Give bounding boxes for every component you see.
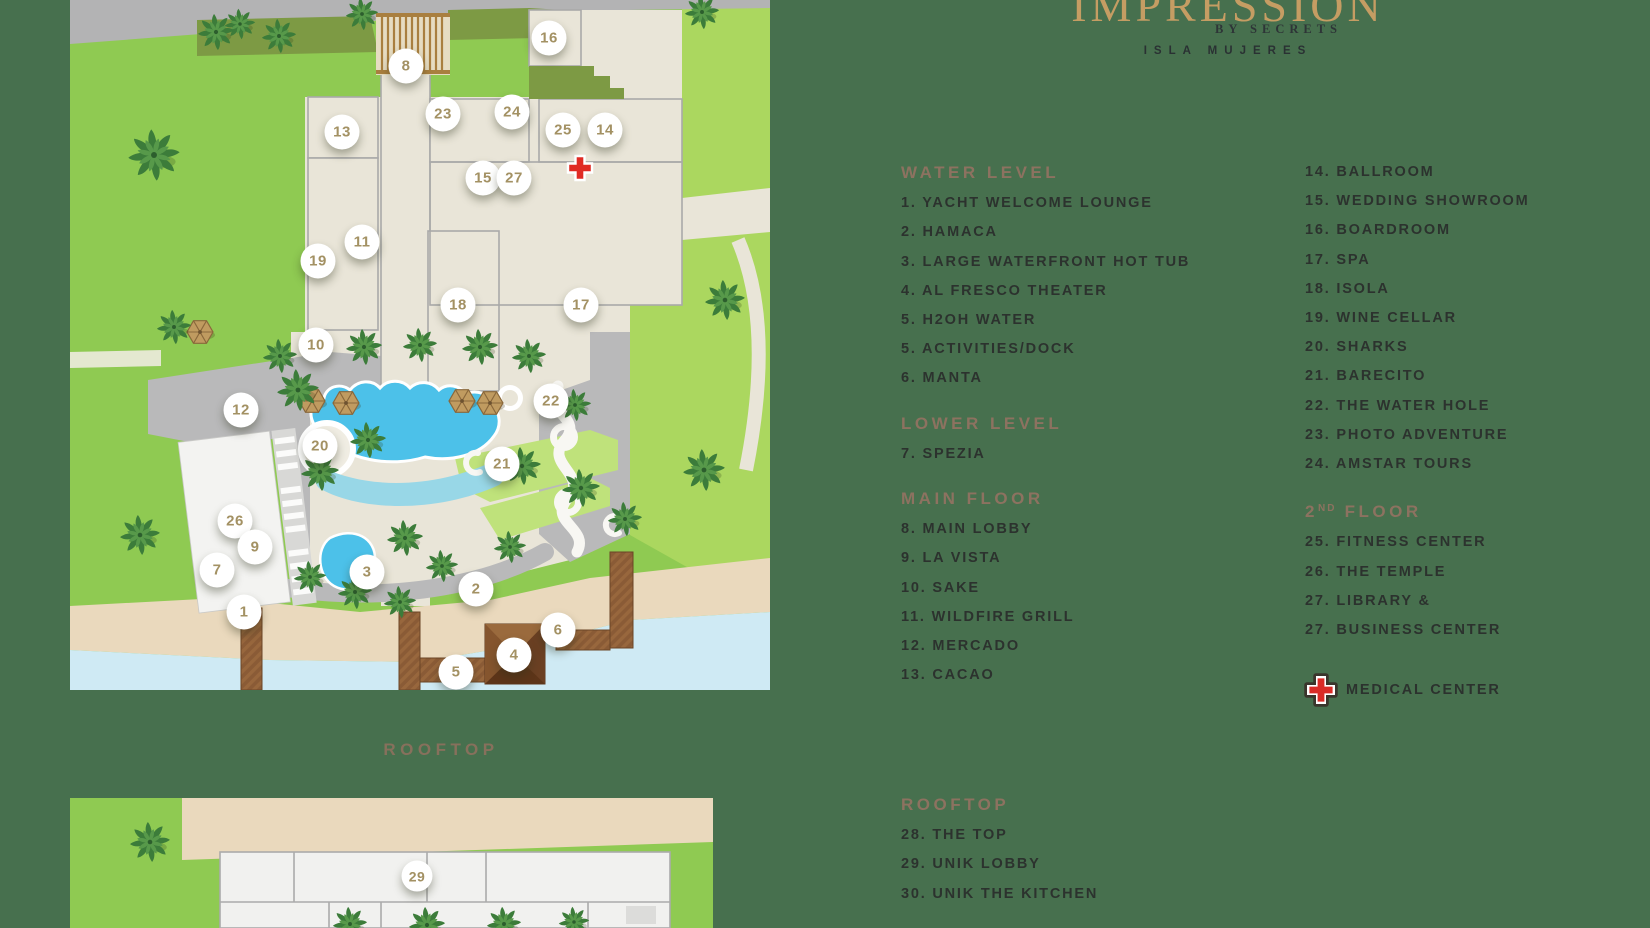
legend-section-title: MAIN FLOOR [901,484,1261,513]
map-marker-29: 29 [402,861,433,892]
map-main-illustration [70,0,770,690]
map-marker-27: 27 [497,161,532,196]
legend-section: LOWER LEVEL7. SPEZIA [901,409,1261,469]
legend-item: 9. LA VISTA [901,544,1261,573]
map-marker-24: 24 [495,95,530,130]
legend-item: 23. PHOTO ADVENTURE [1305,421,1635,450]
map-rooftop-illustration [70,798,713,928]
legend-rooftop: ROOFTOP28. THE TOP29. UNIK LOBBY30. UNIK… [901,790,1261,909]
legend-item: 24. AMSTAR TOURS [1305,450,1635,479]
map-marker-12: 12 [224,393,259,428]
map-marker-22: 22 [534,384,569,419]
map-marker-18: 18 [441,288,476,323]
legend-item: 5. ACTIVITIES/DOCK [901,335,1261,364]
legend-item: 4. AL FRESCO THEATER [901,277,1261,306]
brand-location: ISLA MUJERES [1078,45,1378,57]
map-marker-11: 11 [345,225,380,260]
map-marker-25: 25 [546,113,581,148]
legend-item: 30. UNIK THE KITCHEN [901,880,1261,909]
map-marker-8: 8 [389,49,424,84]
legend-item: 27. LIBRARY & [1305,587,1635,616]
map-marker-20: 20 [303,429,338,464]
map-marker-21: 21 [485,447,520,482]
legend-section: 2ND FLOOR25. FITNESS CENTER26. THE TEMPL… [1305,494,1635,645]
legend-item: 28. THE TOP [901,821,1261,850]
legend-item: 6. MANTA [901,364,1261,393]
medical-center-row: MEDICAL CENTER [1303,672,1501,708]
legend-item: 19. WINE CELLAR [1305,304,1635,333]
map-marker-17: 17 [564,288,599,323]
legend-item: 12. MERCADO [901,632,1261,661]
legend-column-1: WATER LEVEL1. YACHT WELCOME LOUNGE2. HAM… [901,158,1261,690]
legend-item: 21. BARECITO [1305,362,1635,391]
map-marker-13: 13 [325,115,360,150]
legend-item: 3. LARGE WATERFRONT HOT TUB [901,248,1261,277]
medical-cross-icon [1303,672,1339,708]
legend-item: 10. SAKE [901,574,1261,603]
legend-item: 17. SPA [1305,246,1635,275]
map-marker-19: 19 [301,244,336,279]
map-marker-23: 23 [426,97,461,132]
legend-section: ROOFTOP28. THE TOP29. UNIK LOBBY30. UNIK… [901,790,1261,909]
legend-column-2: 14. BALLROOM15. WEDDING SHOWROOM16. BOAR… [1305,158,1635,645]
map-marker-1: 1 [227,595,262,630]
resort-map-page: 1682324132514152719111817101222202126973… [0,0,1650,928]
map-marker-16: 16 [532,21,567,56]
map-marker-14: 14 [588,113,623,148]
legend-item: 29. UNIK LOBBY [901,850,1261,879]
legend-section-title: 2ND FLOOR [1305,494,1635,526]
map-marker-9: 9 [238,530,273,565]
legend-item: 18. ISOLA [1305,275,1635,304]
legend-item: 14. BALLROOM [1305,158,1635,187]
legend-item: 7. SPEZIA [901,440,1261,469]
legend-item: 5. H2OH WATER [901,306,1261,335]
legend-item: 22. THE WATER HOLE [1305,392,1635,421]
map-marker-2: 2 [459,572,494,607]
legend-section-title: LOWER LEVEL [901,409,1261,438]
rooftop-map-label: ROOFTOP [291,740,591,760]
map-main: 1682324132514152719111817101222202126973… [70,0,770,690]
medical-center-label: MEDICAL CENTER [1346,682,1501,698]
legend-item: 15. WEDDING SHOWROOM [1305,187,1635,216]
map-marker-3: 3 [350,555,385,590]
legend-section-title: WATER LEVEL [901,158,1261,187]
legend-item: 13. CACAO [901,661,1261,690]
legend-item: 16. BOARDROOM [1305,216,1635,245]
legend-item: 11. WILDFIRE GRILL [901,603,1261,632]
legend-item: 26. THE TEMPLE [1305,558,1635,587]
legend-section: MAIN FLOOR8. MAIN LOBBY9. LA VISTA10. SA… [901,484,1261,690]
legend-item: 20. SHARKS [1305,333,1635,362]
brand-subtitle: BY SECRETS [1142,22,1342,37]
legend-section: WATER LEVEL1. YACHT WELCOME LOUNGE2. HAM… [901,158,1261,394]
map-marker-6: 6 [541,613,576,648]
legend-item: 8. MAIN LOBBY [901,515,1261,544]
map-marker-5: 5 [439,655,474,690]
legend-item: 1. YACHT WELCOME LOUNGE [901,189,1261,218]
map-marker-10: 10 [299,328,334,363]
map-marker-4: 4 [497,638,532,673]
map-rooftop: 29 [70,798,713,928]
legend-item: 2. HAMACA [901,218,1261,247]
legend-section: 14. BALLROOM15. WEDDING SHOWROOM16. BOAR… [1305,158,1635,479]
legend-section-title: ROOFTOP [901,790,1261,819]
map-marker-15: 15 [466,161,501,196]
legend-item: 25. FITNESS CENTER [1305,528,1635,557]
map-marker-7: 7 [200,553,235,588]
legend-item: 27. BUSINESS CENTER [1305,616,1635,645]
